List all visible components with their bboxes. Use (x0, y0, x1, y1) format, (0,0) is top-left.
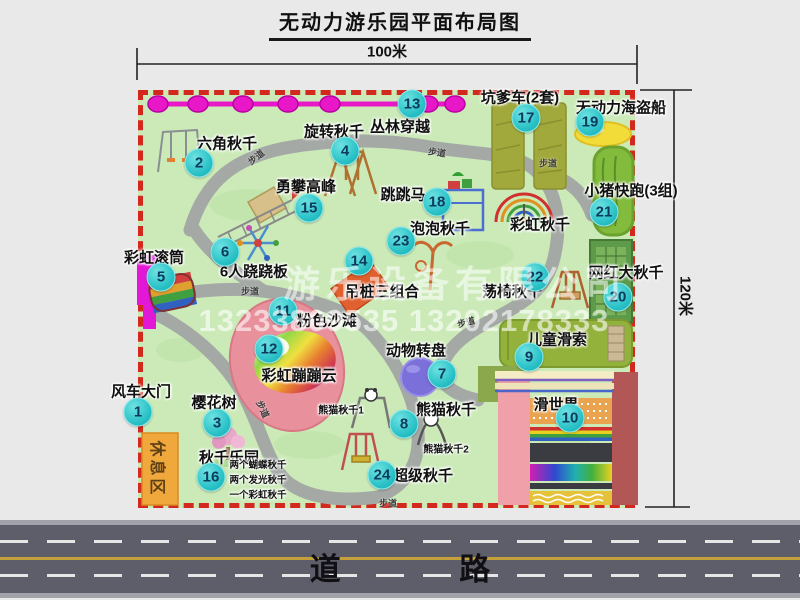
road-label: 道 路 (0, 544, 800, 589)
attraction-badge-14: 14 (345, 247, 374, 276)
attraction-badge-13: 13 (398, 90, 427, 119)
playground-layout-map: 无动力游乐园平面布局图 100米 120米 (0, 0, 800, 600)
attraction-badge-11: 11 (269, 297, 298, 326)
attraction-badge-4: 4 (331, 137, 360, 166)
attraction-badge-10: 10 (556, 404, 585, 433)
extra-label-0: 彩虹秋千 (510, 214, 570, 235)
attraction-badge-24: 24 (368, 461, 397, 490)
extra-label-1: 熊猫秋千1 (318, 402, 364, 417)
walk-path-label-5: 步道 (253, 398, 272, 420)
walk-path-label-6: 步道 (379, 497, 397, 510)
attraction-label-7: 动物转盘 (386, 340, 446, 361)
attraction-label-12: 彩虹蹦蹦云 (261, 365, 336, 386)
walk-path-label-1: 步道 (427, 144, 447, 159)
road: 道 路 (0, 520, 800, 598)
attraction-badge-21: 21 (590, 198, 619, 227)
attraction-label-4: 旋转秋千 (304, 121, 364, 142)
attraction-badge-3: 3 (203, 409, 232, 438)
walk-path-label-4: 步道 (456, 313, 477, 330)
attraction-label-11: 粉色沙滩 (297, 310, 357, 331)
extra-label-2: 熊猫秋千2 (423, 441, 469, 456)
attraction-label-23: 泡泡秋千 (410, 218, 470, 239)
attraction-badge-22: 22 (521, 263, 550, 292)
walk-path-label-2: 步道 (539, 157, 557, 170)
attraction-label-18: 跳跳马 (380, 184, 425, 205)
attraction-label-8: 熊猫秋千 (416, 399, 476, 420)
road-edge-top (0, 520, 800, 525)
swing-park-detail-0: 两个蝴蝶秋千 (229, 457, 286, 471)
walk-path-label-3: 步道 (241, 285, 259, 298)
attraction-badge-17: 17 (512, 104, 541, 133)
attraction-label-14: 吊桩三组合 (344, 281, 419, 302)
attraction-badge-20: 20 (604, 283, 633, 312)
attraction-badge-15: 15 (295, 194, 324, 223)
attraction-badge-18: 18 (423, 188, 452, 217)
attraction-badge-2: 2 (185, 149, 214, 178)
attraction-badge-9: 9 (515, 343, 544, 372)
attraction-badge-1: 1 (124, 398, 153, 427)
attraction-badge-12: 12 (255, 335, 284, 364)
attraction-badge-23: 23 (387, 227, 416, 256)
swing-park-detail-1: 两个发光秋千 (229, 472, 286, 486)
attraction-badge-16: 16 (197, 463, 226, 492)
attraction-badge-7: 7 (428, 360, 457, 389)
attraction-label-20: 网红大秋千 (588, 262, 663, 283)
attraction-badge-6: 6 (211, 238, 240, 267)
labels-layer: 风车大门1六角秋千2樱花树3旋转秋千4彩虹滚筒56人跷跷板6动物转盘7熊猫秋千8… (0, 0, 800, 600)
attraction-badge-5: 5 (147, 263, 176, 292)
attraction-badge-8: 8 (390, 410, 419, 439)
attraction-badge-19: 19 (576, 108, 605, 137)
rest-area-label: 休息区 (147, 440, 171, 497)
swing-park-detail-2: 一个彩虹秋千 (229, 487, 286, 501)
road-lane-line (0, 540, 800, 543)
road-edge-bottom (0, 593, 800, 598)
attraction-label-13: 丛林穿越 (370, 116, 430, 137)
attraction-label-24: 超级秋千 (393, 465, 453, 486)
